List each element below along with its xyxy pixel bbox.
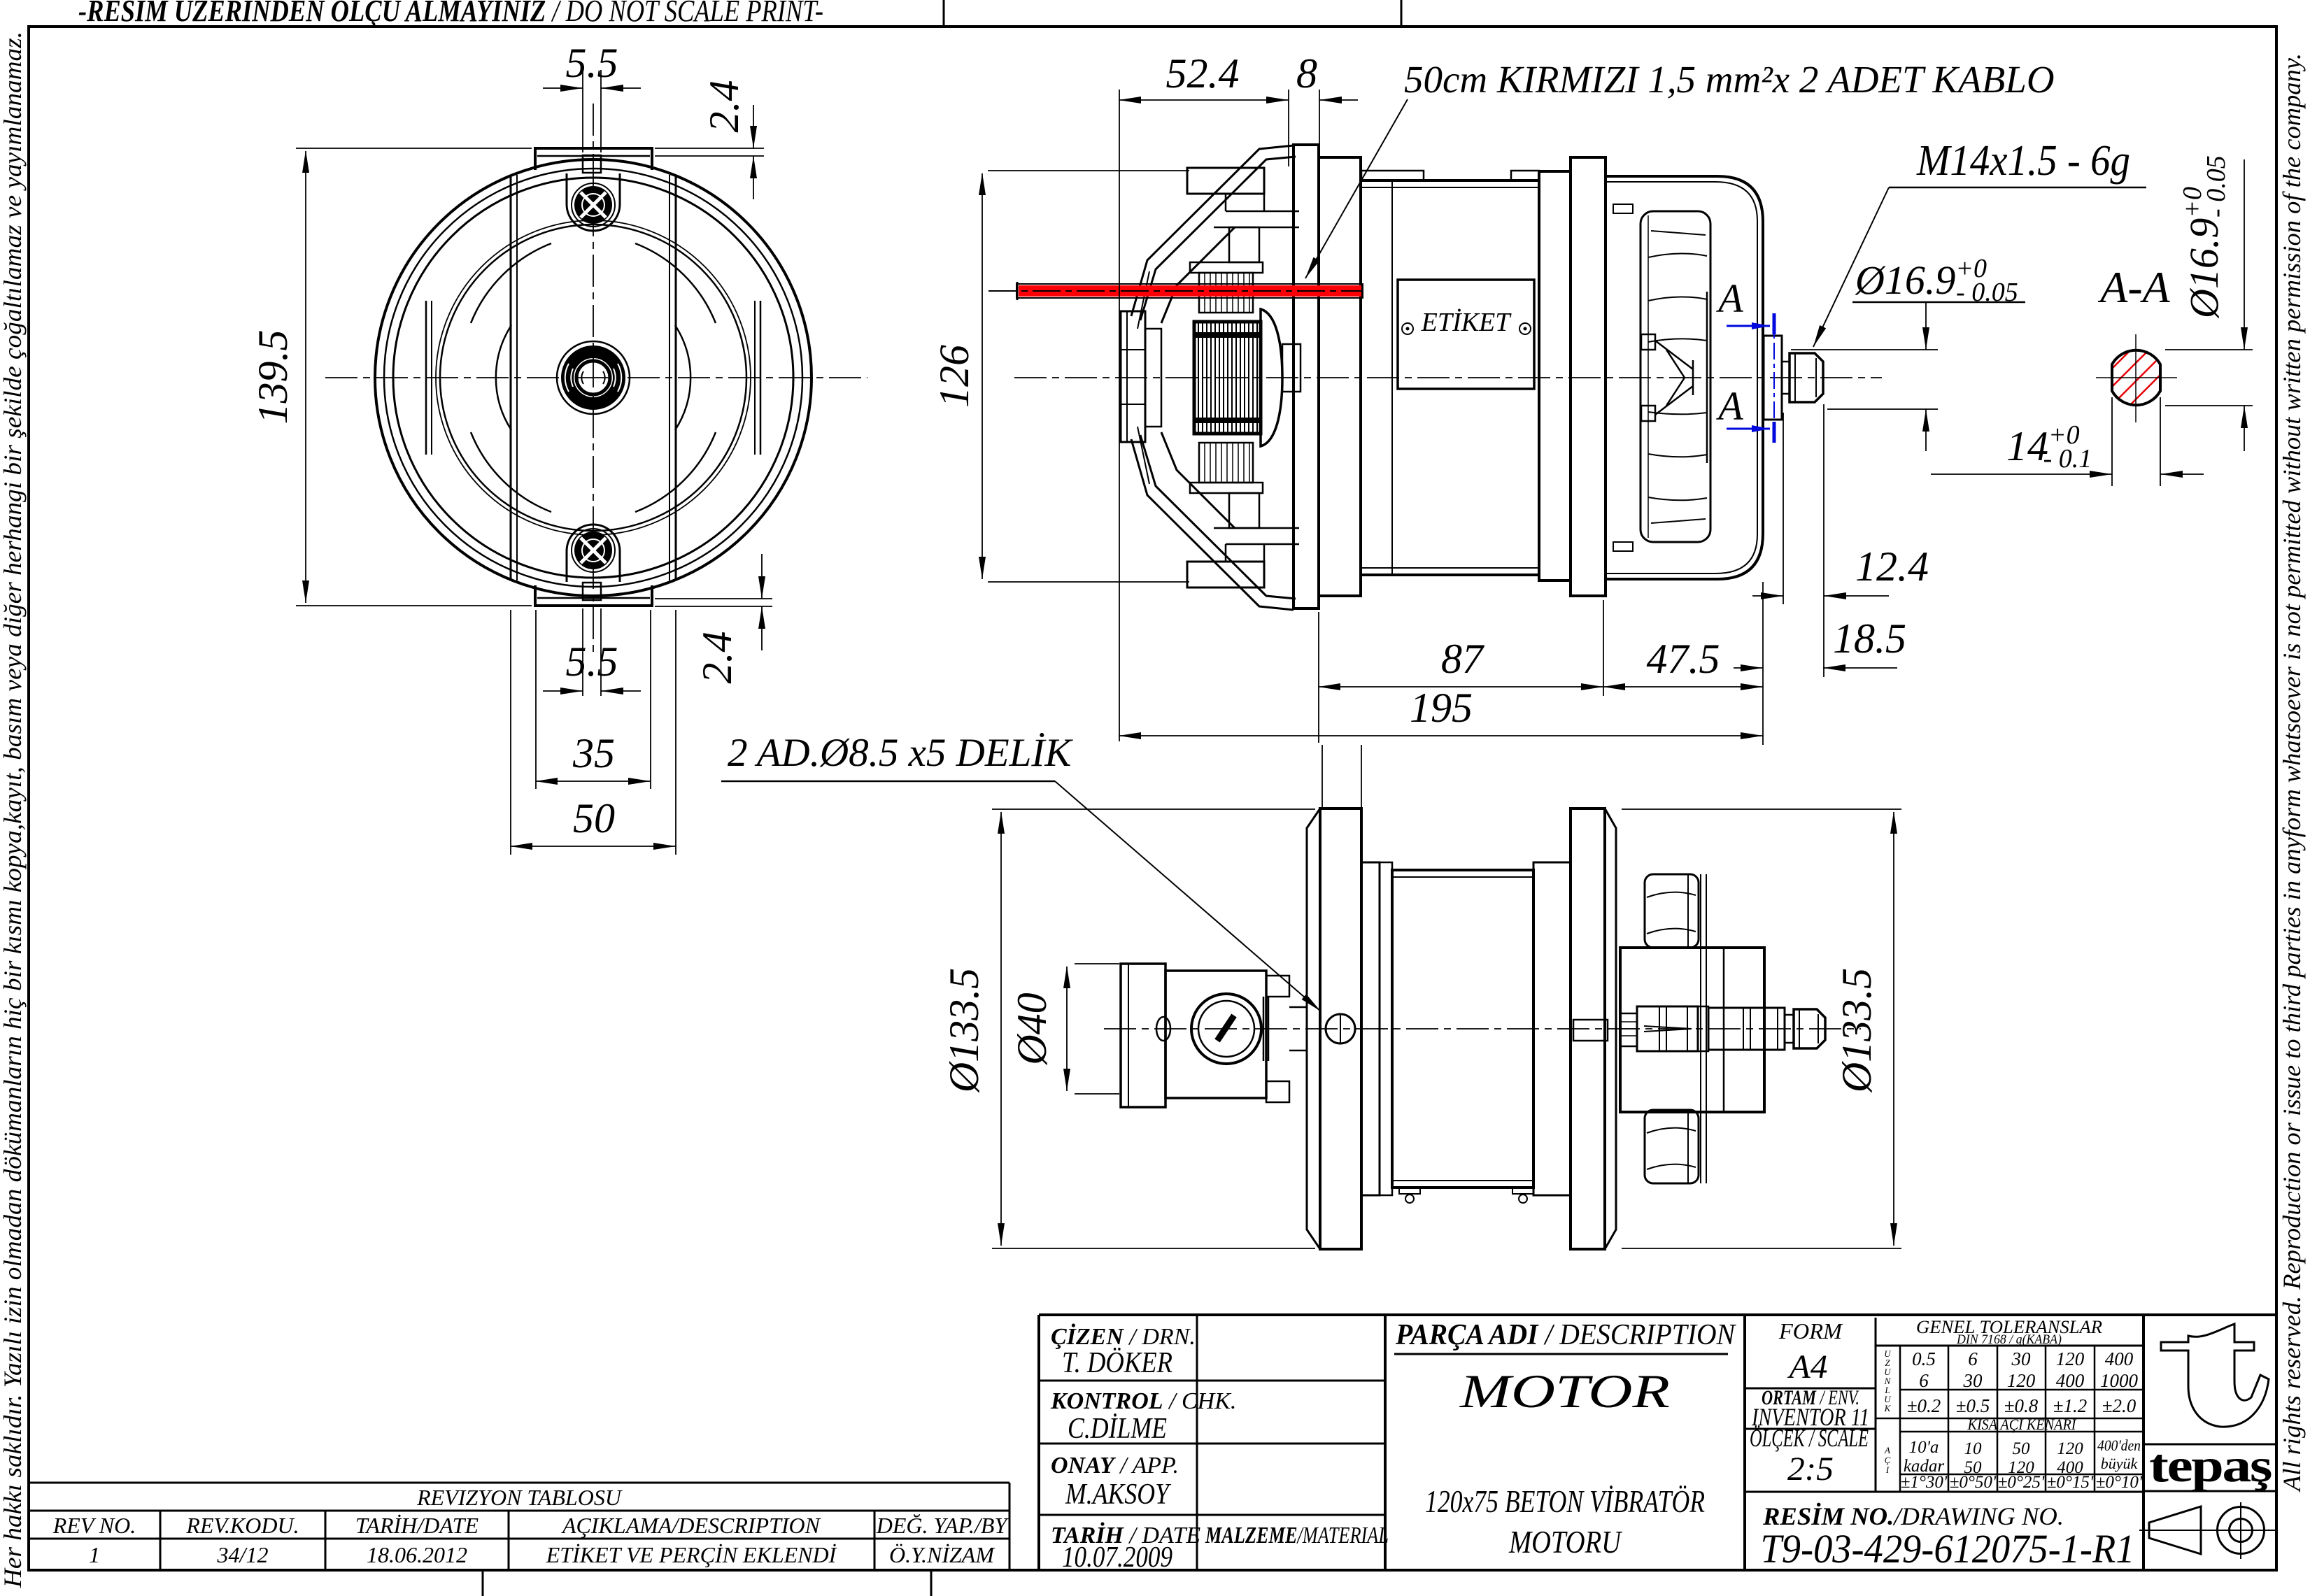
- svg-text:18.06.2012: 18.06.2012: [367, 1542, 467, 1567]
- svg-text:A: A: [1715, 383, 1743, 429]
- svg-text:TARİH/DATE: TARİH/DATE: [355, 1513, 479, 1538]
- svg-text:±1.2: ±1.2: [2053, 1395, 2088, 1416]
- svg-text:±0°15': ±0°15': [2047, 1473, 2094, 1492]
- svg-text:50: 50: [573, 795, 615, 841]
- svg-text:34/12: 34/12: [217, 1542, 269, 1567]
- svg-text:ETİKET VE PERÇİN EKLENDİ: ETİKET VE PERÇİN EKLENDİ: [546, 1542, 837, 1567]
- svg-text:2 AD.Ø8.5 x5 DELİK: 2 AD.Ø8.5 x5 DELİK: [728, 731, 1073, 775]
- svg-text:5.5: 5.5: [566, 40, 618, 86]
- svg-text:C.DİLME: C.DİLME: [1068, 1413, 1167, 1445]
- svg-text:REV.KODU.: REV.KODU.: [185, 1513, 299, 1538]
- svg-text:K: K: [1884, 1403, 1892, 1413]
- svg-text:50cm KIRMIZI 1,5 mm²x 2 ADET K: 50cm KIRMIZI 1,5 mm²x 2 ADET KABLO: [1404, 58, 2055, 101]
- svg-text:8: 8: [1296, 50, 1317, 97]
- svg-text:A4: A4: [1787, 1348, 1827, 1385]
- svg-text:ÖLÇEK / SCALE: ÖLÇEK / SCALE: [1750, 1424, 1869, 1452]
- svg-text:ETİKET: ETİKET: [1421, 308, 1512, 337]
- svg-text:Ø133.5: Ø133.5: [941, 968, 987, 1093]
- svg-text:12.4: 12.4: [1855, 543, 1929, 590]
- svg-text:6: 6: [1919, 1370, 1929, 1391]
- svg-text:A-A: A-A: [2097, 262, 2170, 312]
- svg-text:2.4: 2.4: [701, 80, 747, 133]
- svg-text:120: 120: [2007, 1370, 2036, 1391]
- svg-text:400: 400: [2056, 1370, 2085, 1391]
- svg-text:±0°10': ±0°10': [2096, 1473, 2143, 1492]
- svg-text:87: 87: [1441, 636, 1485, 682]
- svg-text:Ø133.5: Ø133.5: [1834, 968, 1880, 1093]
- svg-text:18.5: 18.5: [1833, 615, 1906, 662]
- svg-text:MOTOR: MOTOR: [1459, 1365, 1670, 1418]
- svg-text:400'den: 400'den: [2097, 1437, 2141, 1454]
- svg-text:35: 35: [572, 730, 615, 776]
- svg-text:Her hakkı saklıdır. Yazılı izi: Her hakkı saklıdır. Yazılı izin olmadan …: [0, 31, 27, 1588]
- svg-text:120: 120: [2056, 1348, 2085, 1369]
- svg-text:50: 50: [2013, 1439, 2031, 1458]
- svg-text:52.4: 52.4: [1166, 50, 1240, 97]
- svg-text:±2.0: ±2.0: [2102, 1395, 2137, 1416]
- svg-text:Ç: Ç: [1885, 1455, 1891, 1465]
- svg-text:A: A: [1715, 276, 1743, 321]
- svg-text:47.5: 47.5: [1647, 636, 1720, 682]
- svg-text:-RESİM ÜZERİNDEN ÖLÇÜ ALMAYINI: -RESİM ÜZERİNDEN ÖLÇÜ ALMAYINIZ / DO NOT…: [78, 0, 823, 28]
- svg-text:tepaş: tepaş: [2149, 1439, 2272, 1492]
- svg-text:Ø40: Ø40: [1009, 992, 1055, 1065]
- svg-text:14+0- 0.1: 14+0- 0.1: [2006, 420, 2092, 473]
- svg-text:±0.2: ±0.2: [1907, 1395, 1941, 1416]
- svg-text:139.5: 139.5: [250, 330, 296, 425]
- svg-text:büyük: büyük: [2101, 1455, 2139, 1472]
- svg-text:126: 126: [931, 345, 977, 408]
- svg-text:2.4: 2.4: [694, 632, 740, 684]
- svg-text:MOTORU: MOTORU: [1508, 1524, 1622, 1560]
- svg-text:DEĞ. YAP./BY: DEĞ. YAP./BY: [876, 1513, 1009, 1538]
- svg-text:30: 30: [1963, 1370, 1983, 1391]
- svg-text:10: 10: [1964, 1439, 1983, 1458]
- svg-text:REVIZYON TABLOSU: REVIZYON TABLOSU: [416, 1485, 623, 1510]
- svg-text:6: 6: [1968, 1348, 1978, 1369]
- svg-text:AÇIKLAMA/DESCRIPTION: AÇIKLAMA/DESCRIPTION: [561, 1513, 821, 1538]
- svg-text:±0°50': ±0°50': [1950, 1473, 1997, 1492]
- svg-text:REV NO.: REV NO.: [52, 1513, 136, 1538]
- svg-text:±0.5: ±0.5: [1956, 1395, 1990, 1416]
- svg-text:MALZEME/MATERIAL: MALZEME/MATERIAL: [1205, 1523, 1389, 1548]
- svg-text:ÇİZEN / DRN.: ÇİZEN / DRN.: [1051, 1323, 1196, 1350]
- svg-text:KISA AÇI KENARI: KISA AÇI KENARI: [1967, 1416, 2077, 1433]
- svg-text:120x75 BETON VİBRATÖR: 120x75 BETON VİBRATÖR: [1425, 1483, 1705, 1519]
- svg-text:Ö.Y.NİZAM: Ö.Y.NİZAM: [889, 1542, 995, 1567]
- svg-text:0.5: 0.5: [1912, 1348, 1936, 1369]
- svg-text:M14x1.5 - 6g: M14x1.5 - 6g: [1916, 137, 2130, 185]
- svg-text:PARÇA ADI / DESCRIPTION: PARÇA ADI / DESCRIPTION: [1395, 1319, 1736, 1351]
- svg-text:M.AKSOY: M.AKSOY: [1065, 1479, 1172, 1511]
- svg-text:10'a: 10'a: [1909, 1438, 1939, 1457]
- svg-text:A: A: [1884, 1445, 1890, 1455]
- svg-text:30: 30: [2011, 1348, 2032, 1369]
- svg-text:KONTROL / CHK.: KONTROL / CHK.: [1050, 1388, 1236, 1414]
- svg-text:120: 120: [2057, 1439, 2083, 1458]
- svg-text:T9-03-429-612075-1-R1: T9-03-429-612075-1-R1: [1761, 1526, 2135, 1572]
- svg-text:±0°25': ±0°25': [1998, 1473, 2045, 1492]
- svg-text:1000: 1000: [2100, 1370, 2139, 1391]
- svg-text:400: 400: [2105, 1348, 2134, 1369]
- svg-text:10.07.2009: 10.07.2009: [1062, 1541, 1172, 1574]
- svg-text:±1°30': ±1°30': [1901, 1473, 1948, 1492]
- svg-text:1: 1: [89, 1542, 100, 1567]
- svg-text:I: I: [1885, 1465, 1890, 1475]
- svg-text:5.5: 5.5: [566, 639, 618, 685]
- svg-text:195: 195: [1410, 685, 1473, 731]
- svg-text:2:5: 2:5: [1787, 1451, 1834, 1488]
- svg-text:DIN 7168 / g(KABA): DIN 7168 / g(KABA): [1956, 1332, 2062, 1347]
- svg-text:±0.8: ±0.8: [2004, 1395, 2039, 1416]
- svg-text:All rights reserved. Reproduct: All rights reserved. Reproduction or iss…: [2278, 53, 2306, 1492]
- svg-text:T. DÖKER: T. DÖKER: [1062, 1347, 1172, 1379]
- svg-text:ONAY / APP.: ONAY / APP.: [1051, 1453, 1179, 1479]
- svg-text:FORM: FORM: [1778, 1318, 1843, 1344]
